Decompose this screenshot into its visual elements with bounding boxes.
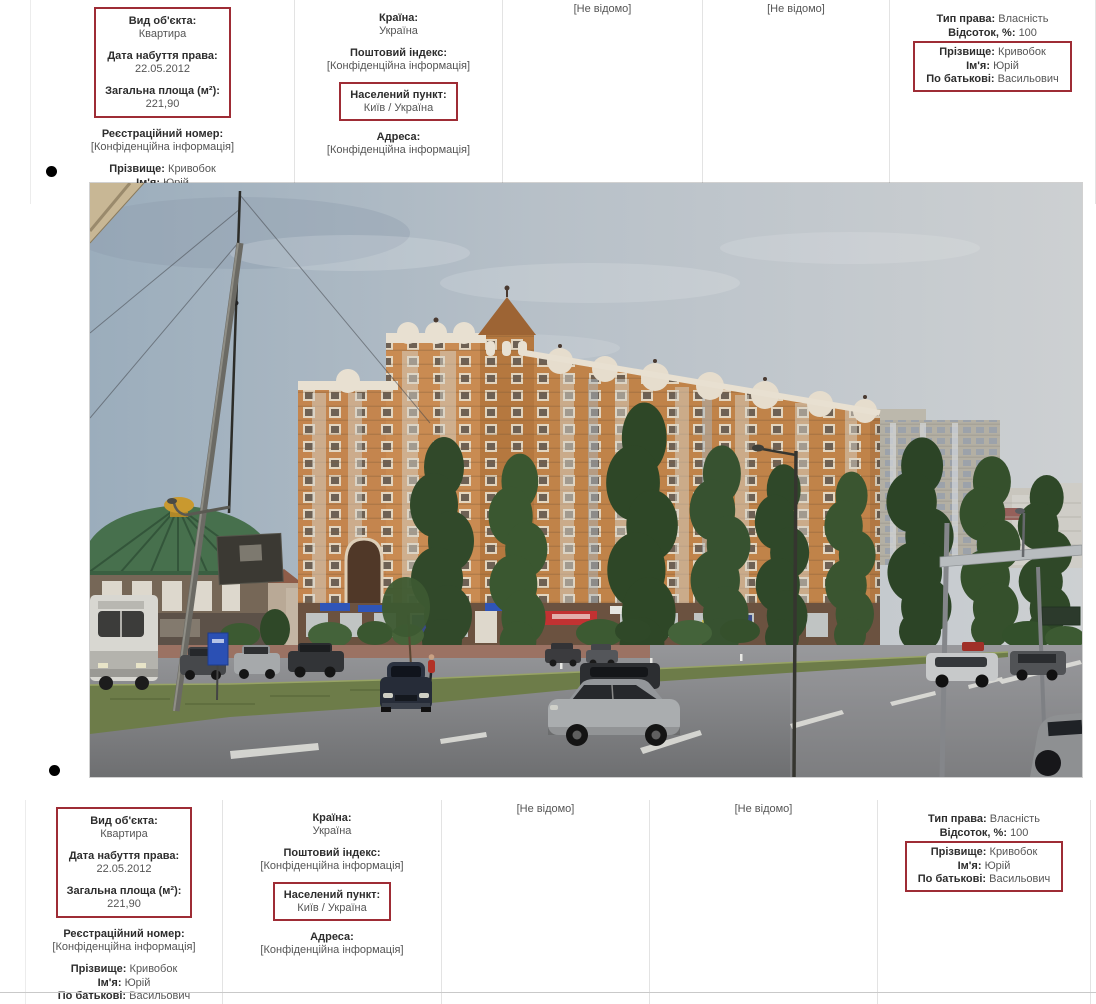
unknown-column-1: [Не відомо] [503,0,703,204]
owner-surname: Прізвище: Кривобок [926,46,1058,59]
right-type: Тип права: Власність [878,813,1090,826]
list-bullet [49,765,60,776]
owner-name: Ім'я: Юрій [926,60,1058,73]
right-type: Тип права: Власність [890,13,1095,26]
owner-name: Ім'я: Юрій [918,860,1050,873]
unknown-column-2: [Не відомо] [703,0,890,204]
owner-surname: Прізвище: Кривобок [26,963,222,976]
object-type-field: Вид об'єкта: Квартира [67,815,182,840]
right-percent: Відсоток, %: 100 [878,827,1090,840]
highlight-box-owner: Прізвище: Кривобок Ім'я: Юрій По батьков… [913,41,1071,92]
highlight-box-city: Населений пункт: Київ / Україна [273,882,391,921]
reg-number-field: Реєстраційний номер: [Конфіденційна інфо… [26,928,222,953]
right-percent: Відсоток, %: 100 [890,27,1095,40]
highlight-box-object: Вид об'єкта: Квартира Дата набуття права… [94,7,231,118]
object-type-value: Квартира [105,28,220,41]
highlight-box-object: Вид об'єкта: Квартира Дата набуття права… [56,807,193,918]
postal-field: Поштовий індекс: [Конфіденційна інформац… [295,47,502,72]
acquire-date-field: Дата набуття права: 22.05.2012 [67,850,182,875]
total-area-field: Загальна площа (м²): 221,90 [105,85,220,110]
object-column: Вид об'єкта: Квартира Дата набуття права… [30,0,295,204]
unknown-column-1: [Не відомо] [442,800,650,1004]
object-type-label: Вид об'єкта: [105,15,220,28]
property-record-row-bottom: Вид об'єкта: Квартира Дата набуття права… [25,800,1091,993]
reg-number-field: Реєстраційний номер: [Конфіденційна інфо… [31,128,294,153]
highlight-box-owner: Прізвище: Кривобок Ім'я: Юрій По батьков… [905,841,1063,892]
acquire-date-field: Дата набуття права: 22.05.2012 [105,50,220,75]
location-column: Країна: Україна Поштовий індекс: [Конфід… [223,800,442,1004]
rights-column: Тип права: Власність Відсоток, %: 100 Пр… [878,800,1091,1004]
postal-field: Поштовий індекс: [Конфіденційна інформац… [223,847,441,872]
property-record-row-top: Вид об'єкта: Квартира Дата набуття права… [30,0,1096,166]
owner-name: Ім'я: Юрій [26,977,222,990]
list-bullet [46,166,57,177]
rights-column: Тип права: Власність Відсоток, %: 100 Пр… [890,0,1096,204]
total-area-field: Загальна площа (м²): 221,90 [67,885,182,910]
owner-patronymic: По батькові: Васильович [926,73,1058,86]
object-type-field: Вид об'єкта: Квартира [105,15,220,40]
unknown-text: [Не відомо] [735,803,793,815]
owner-patronymic: По батькові: Васильович [918,873,1050,886]
owner-surname: Прізвище: Кривобок [31,163,294,176]
country-field: Країна: Україна [223,812,441,837]
owner-surname: Прізвище: Кривобок [918,846,1050,859]
section-divider [0,992,1096,993]
unknown-text: [Не відомо] [574,3,632,15]
street-view-photo [90,183,1082,777]
highlight-box-city: Населений пункт: Київ / Україна [339,82,457,121]
country-field: Країна: Україна [295,12,502,37]
location-column: Країна: Україна Поштовий індекс: [Конфід… [295,0,503,204]
city-field: Населений пункт: Київ / Україна [284,889,380,914]
unknown-text: [Не відомо] [517,803,575,815]
unknown-text: [Не відомо] [767,3,825,15]
object-column: Вид об'єкта: Квартира Дата набуття права… [25,800,223,1004]
city-field: Населений пункт: Київ / Україна [350,89,446,114]
unknown-column-2: [Не відомо] [650,800,878,1004]
address-field: Адреса: [Конфіденційна інформація] [223,931,441,956]
address-field: Адреса: [Конфіденційна інформація] [295,131,502,156]
